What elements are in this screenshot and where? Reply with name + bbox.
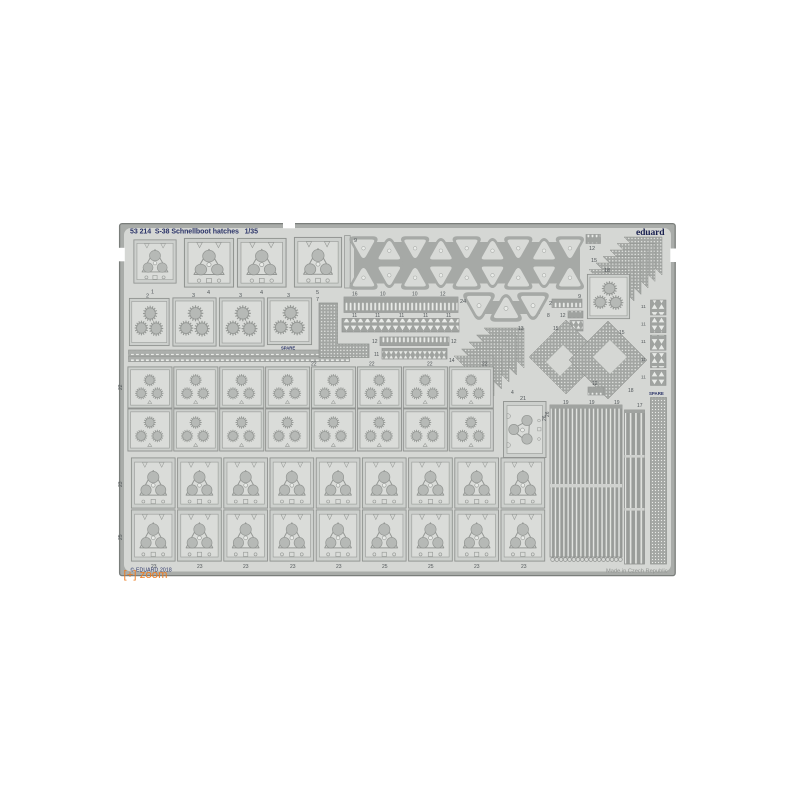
svg-text:11: 11 bbox=[641, 357, 646, 362]
svg-text:11: 11 bbox=[423, 313, 428, 319]
svg-text:11: 11 bbox=[399, 313, 404, 319]
svg-text:26: 26 bbox=[542, 415, 548, 421]
svg-text:11: 11 bbox=[641, 339, 646, 344]
svg-text:9: 9 bbox=[354, 238, 357, 244]
svg-text:3: 3 bbox=[287, 293, 290, 299]
svg-text:13: 13 bbox=[518, 326, 524, 332]
svg-text:12: 12 bbox=[592, 381, 598, 387]
svg-text:3: 3 bbox=[239, 293, 242, 299]
svg-text:19: 19 bbox=[614, 400, 620, 406]
svg-text:12: 12 bbox=[560, 313, 566, 319]
svg-text:11: 11 bbox=[641, 304, 646, 309]
svg-text:1: 1 bbox=[151, 290, 154, 296]
svg-text:25: 25 bbox=[118, 534, 124, 540]
svg-text:19: 19 bbox=[589, 400, 595, 406]
svg-text:12: 12 bbox=[451, 339, 457, 345]
svg-text:22: 22 bbox=[118, 384, 124, 390]
svg-text:4: 4 bbox=[511, 390, 514, 396]
svg-text:10: 10 bbox=[412, 292, 418, 298]
svg-text:18: 18 bbox=[628, 388, 634, 394]
svg-text:12: 12 bbox=[440, 292, 446, 298]
svg-text:11: 11 bbox=[641, 322, 646, 327]
svg-text:10: 10 bbox=[380, 292, 386, 298]
svg-text:23: 23 bbox=[474, 564, 480, 570]
svg-text:23: 23 bbox=[336, 564, 342, 570]
svg-text:17: 17 bbox=[637, 403, 643, 409]
svg-text:11: 11 bbox=[375, 313, 380, 319]
svg-text:15: 15 bbox=[591, 258, 597, 264]
svg-text:4: 4 bbox=[260, 290, 263, 296]
svg-text:53 214 S-38 Schnellboot hatch: 53 214 S-38 Schnellboot hatches 1/35 bbox=[130, 229, 258, 236]
svg-text:23: 23 bbox=[243, 564, 249, 570]
svg-text:23: 23 bbox=[290, 564, 296, 570]
svg-text:23: 23 bbox=[197, 564, 203, 570]
svg-text:11: 11 bbox=[641, 374, 646, 379]
svg-text:25: 25 bbox=[428, 564, 434, 570]
svg-text:4: 4 bbox=[207, 290, 210, 296]
svg-text:18: 18 bbox=[604, 268, 610, 274]
svg-text:7: 7 bbox=[316, 297, 319, 303]
svg-text:12: 12 bbox=[372, 339, 378, 345]
svg-text:12: 12 bbox=[589, 246, 595, 252]
svg-text:16: 16 bbox=[352, 292, 358, 298]
svg-text:11: 11 bbox=[446, 313, 451, 319]
svg-text:8: 8 bbox=[547, 313, 550, 319]
svg-text:[+] zoom: [+] zoom bbox=[124, 569, 168, 581]
svg-text:11: 11 bbox=[352, 313, 357, 319]
svg-text:eduard: eduard bbox=[636, 227, 665, 238]
svg-text:15: 15 bbox=[553, 326, 559, 332]
svg-text:3: 3 bbox=[192, 293, 195, 299]
svg-text:25: 25 bbox=[382, 564, 388, 570]
svg-text:2: 2 bbox=[146, 294, 149, 300]
svg-text:11: 11 bbox=[374, 352, 379, 358]
svg-text:SPARE: SPARE bbox=[649, 391, 664, 396]
svg-text:24: 24 bbox=[460, 299, 466, 305]
svg-text:19: 19 bbox=[563, 400, 569, 406]
svg-text:14: 14 bbox=[449, 358, 455, 364]
svg-text:15: 15 bbox=[619, 330, 625, 336]
svg-text:21: 21 bbox=[520, 396, 526, 402]
svg-text:Made in Czech Republic: Made in Czech Republic bbox=[606, 569, 668, 575]
svg-text:5: 5 bbox=[316, 290, 319, 296]
svg-text:23: 23 bbox=[118, 481, 124, 487]
svg-text:23: 23 bbox=[521, 564, 527, 570]
